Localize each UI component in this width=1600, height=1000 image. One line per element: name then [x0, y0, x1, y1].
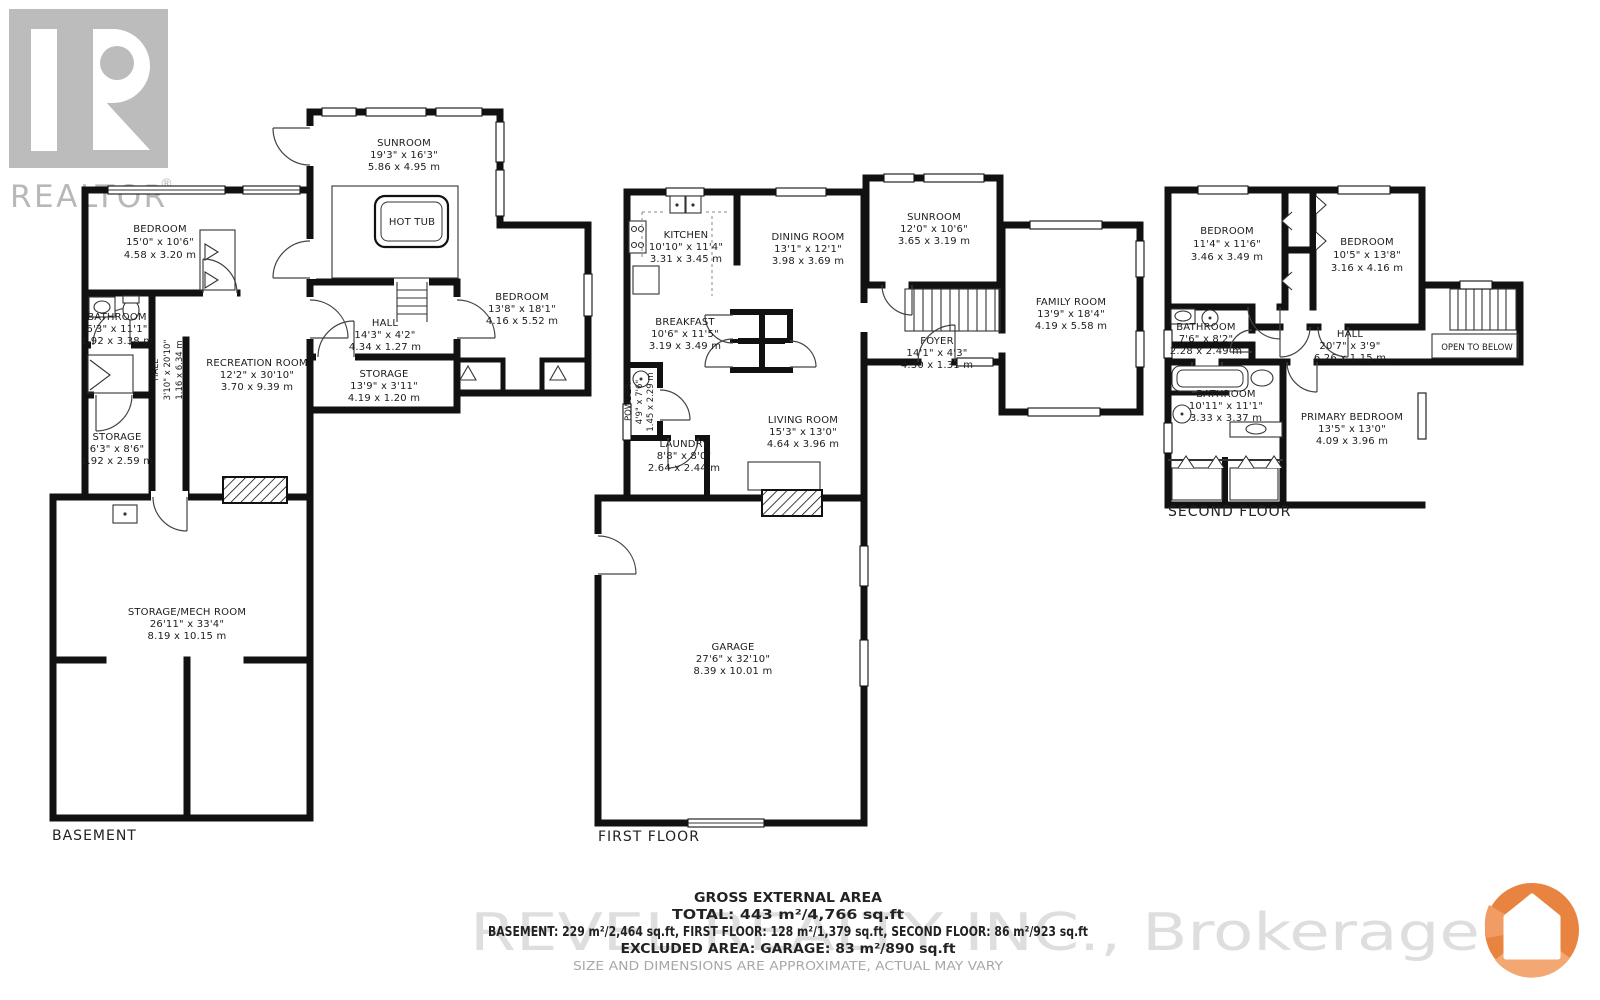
hot-tub	[332, 186, 458, 278]
room-label: BATHROOM	[1196, 389, 1255, 400]
room-dim: 2.64 x 2.44 m	[648, 463, 720, 474]
room-dim: 13'8" x 18'1"	[488, 304, 556, 315]
room-dim: 6'3" x 11'1"	[86, 324, 147, 335]
room-label: BATHROOM	[87, 312, 146, 323]
room-label: BEDROOM	[495, 292, 549, 303]
room-dim: 3.31 x 3.45 m	[650, 254, 722, 265]
room-dim: 10'11" x 11'1"	[1189, 401, 1263, 412]
room-dim: 4.30 x 1.31 m	[901, 360, 973, 371]
room-dim: 8.39 x 10.01 m	[694, 666, 773, 677]
room-dim: 3'10" x 20'10"	[163, 340, 173, 401]
room-dim: 3.33 x 3.37 m	[1190, 413, 1262, 424]
second-floor-plan: BEDROOM 11'4" x 11'6" 3.46 x 3.49 m BEDR…	[1164, 186, 1520, 520]
room-label: STORAGE	[359, 369, 408, 380]
kitchen-fixtures	[629, 196, 730, 387]
room-label: SUNROOM	[377, 138, 431, 149]
room-dim: 6.26 x 1.15 m	[1314, 353, 1386, 364]
room-label: STORAGE/MECH ROOM	[128, 607, 246, 618]
room-dim: 19'3" x 16'3"	[370, 150, 438, 161]
room-dim: 13'1" x 12'1"	[774, 244, 842, 255]
room-label: DINING ROOM	[771, 232, 844, 243]
floorplan-page: REALTOR ® REVEL REALTY INC., Brokerage	[0, 0, 1600, 1000]
room-dim: 15'3" x 13'0"	[769, 427, 837, 438]
floorplan-canvas: REALTOR ® REVEL REALTY INC., Brokerage	[0, 0, 1600, 1000]
room-label: GARAGE	[711, 642, 754, 653]
room-dim: 12'2" x 30'10"	[220, 370, 294, 381]
room-label: PRIMARY BEDROOM	[1301, 412, 1403, 423]
room-dim: 13'5" x 13'0"	[1318, 424, 1386, 435]
room-dim: 1.92 x 3.38 m	[81, 336, 153, 347]
gross-area-title: GROSS EXTERNAL AREA	[694, 890, 883, 906]
brokerage-house-logo	[1485, 883, 1579, 978]
room-label: STORAGE	[92, 432, 141, 443]
room-dim: 10'6" x 11'5"	[651, 329, 719, 340]
room-dim: 27'6" x 32'10"	[696, 654, 770, 665]
room-label: RECREATION ROOM	[206, 358, 308, 369]
room-dim: 4.19 x 1.20 m	[348, 393, 420, 404]
first-floor-porch-hatch	[748, 462, 822, 516]
room-label: FOYER	[920, 336, 953, 347]
room-label: SUNROOM	[907, 212, 961, 223]
disclaimer: SIZE AND DIMENSIONS ARE APPROXIMATE, ACT…	[573, 959, 1004, 973]
room-label: BEDROOM	[1200, 226, 1254, 237]
second-floor-room-labels: BEDROOM 11'4" x 11'6" 3.46 x 3.49 m BEDR…	[1170, 226, 1514, 447]
room-dim: 3.98 x 3.69 m	[772, 256, 844, 267]
room-dim: 4.19 x 5.58 m	[1035, 321, 1107, 332]
room-label: HOT TUB	[389, 217, 435, 228]
room-dim: 12'0" x 10'6"	[900, 224, 968, 235]
second-floor-label: SECOND FLOOR	[1168, 504, 1291, 520]
room-label: FAMILY ROOM	[1036, 297, 1106, 308]
room-dim: 1.45 x 2.29 m	[646, 372, 656, 431]
room-label: POWDER	[624, 383, 634, 421]
room-dim: 15'0" x 10'6"	[126, 237, 194, 248]
total-area: TOTAL: 443 m²/4,766 sq.ft	[672, 907, 905, 923]
room-dim: 13'9" x 3'11"	[350, 381, 418, 392]
room-label: BEDROOM	[133, 224, 187, 235]
room-label: BATHROOM	[1176, 322, 1235, 333]
room-dim: 3.65 x 3.19 m	[898, 236, 970, 247]
room-label: BEDROOM	[1340, 237, 1394, 248]
basement-floor-label: BASEMENT	[52, 828, 137, 844]
room-dim: 8.19 x 10.15 m	[148, 631, 227, 642]
room-dim: 5.86 x 4.95 m	[368, 162, 440, 173]
room-label: HALL	[151, 359, 161, 381]
room-label: BREAKFAST	[655, 317, 715, 328]
room-dim: 3.16 x 4.16 m	[1331, 263, 1403, 274]
room-dim: 4'9" x 7'6"	[635, 380, 645, 425]
room-dim: 8'8" x 8'0"	[657, 451, 712, 462]
room-dim: 4.64 x 3.96 m	[767, 439, 839, 450]
room-dim: 11'4" x 11'6"	[1193, 239, 1261, 250]
room-label: HALL	[372, 318, 399, 329]
room-dim: 10'10" x 11'4"	[649, 242, 723, 253]
room-dim: 1.16 x 6.34 m	[175, 340, 185, 399]
room-dim: 3.70 x 9.39 m	[221, 382, 293, 393]
room-dim: 4.58 x 3.20 m	[124, 250, 196, 261]
room-dim: 1.92 x 2.59 m	[81, 456, 153, 467]
room-label: LIVING ROOM	[768, 415, 838, 426]
floor-breakdown: BASEMENT: 229 m²/2,464 sq.ft, FIRST FLOO…	[488, 924, 1088, 940]
room-dim: 10'5" x 13'8"	[1333, 250, 1401, 261]
room-dim: 4.09 x 3.96 m	[1316, 436, 1388, 447]
room-label: LAUNDRY	[660, 439, 710, 450]
first-floor-label: FIRST FLOOR	[598, 829, 700, 845]
room-dim: 3.46 x 3.49 m	[1191, 252, 1263, 263]
room-dim: 4.34 x 1.27 m	[349, 342, 421, 353]
room-dim: 14'3" x 4'2"	[354, 330, 415, 341]
basement-stair-hatch	[223, 477, 287, 503]
room-dim: 3.19 x 3.49 m	[649, 341, 721, 352]
room-label: KITCHEN	[664, 230, 709, 241]
room-dim: 4.16 x 5.52 m	[486, 316, 558, 327]
room-label: OPEN TO BELOW	[1441, 343, 1513, 353]
room-label: HALL	[1337, 329, 1364, 340]
first-floor-plan: KITCHEN 10'10" x 11'4" 3.31 x 3.45 m DIN…	[593, 174, 1144, 845]
excluded-area: EXCLUDED AREA: GARAGE: 83 m²/890 sq.ft	[621, 941, 957, 957]
room-dim: 7'6" x 8'2"	[1179, 334, 1234, 345]
room-dim: 26'11" x 33'4"	[150, 619, 224, 630]
room-dim: 20'7" x 3'9"	[1319, 341, 1380, 352]
room-dim: 6'3" x 8'6"	[90, 444, 145, 455]
basement-closet-walls	[457, 360, 588, 393]
first-floor-walls	[598, 178, 1140, 823]
realtor-wordmark: REALTOR	[10, 179, 168, 215]
room-dim: 14'1" x 4'3"	[906, 348, 967, 359]
room-dim: 2.28 x 2.49 m	[1170, 346, 1242, 357]
basement-plan: BEDROOM 15'0" x 10'6" 4.58 x 3.20 m BATH…	[52, 108, 592, 844]
room-dim: 13'9" x 18'4"	[1037, 309, 1105, 320]
realtor-logo: REALTOR ®	[9, 9, 173, 215]
